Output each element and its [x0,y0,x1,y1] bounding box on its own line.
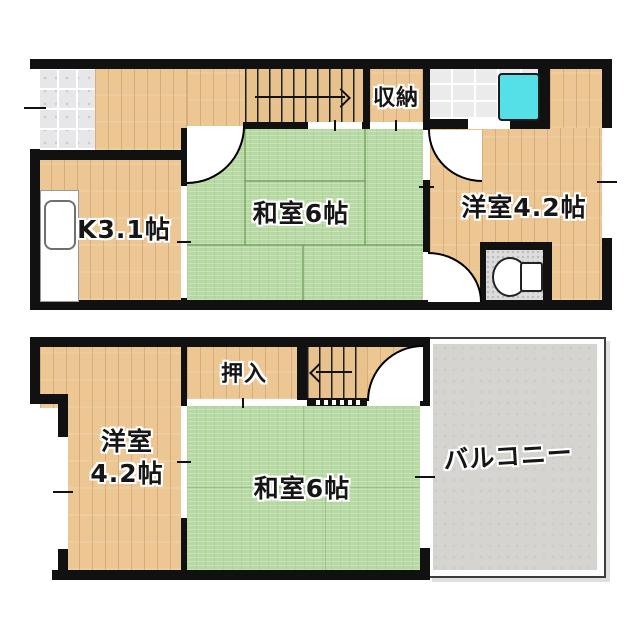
room-label-western-2f-line1: 洋室 [101,422,153,458]
sliding-door-tick [395,120,397,131]
kitchen-sink [44,200,76,250]
sliding-door-tick [177,461,191,463]
wall [52,570,430,580]
room-label-closet: 押入 [221,356,267,388]
tatami-seam [244,128,246,246]
wall [480,242,552,250]
tatami-seam [244,180,366,182]
room-label-kitchen: K3.1帖 [77,210,171,246]
sliding-door-tick [242,398,244,408]
wall [543,250,552,300]
window-tick [24,107,46,109]
wall [30,337,430,347]
toilet-tank [520,262,543,292]
wall [243,122,308,129]
hallway-floor-2 [187,69,245,128]
room-label-western-2f-line2: 4.2帖 [90,454,163,490]
tatami-seam [302,244,304,300]
sliding-door-tick [334,120,336,131]
window-tick [53,491,73,493]
western-room-floor-strip [550,69,602,128]
entrance-tile-floor [38,69,95,150]
room-label-tatami-2f: 和室6帖 [254,469,350,505]
stair-railing-dashes [312,400,362,405]
window-opening [602,128,612,238]
wall [30,300,612,310]
window-tick [415,476,435,478]
wall-tick [419,186,434,188]
entrance-door-opening [30,69,40,149]
room-label-storage: 収納 [373,80,419,112]
wall [423,59,430,128]
floor-plan-canvas: K3.1帖 和室6帖 洋室4.2帖 収納 [0,0,640,640]
wall [30,59,612,69]
sliding-door-tick [177,241,191,243]
room-label-tatami-1f: 和室6帖 [253,194,349,230]
room-label-western-1f: 洋室4.2帖 [461,188,586,224]
wall [297,347,307,400]
tatami-seam [364,128,366,246]
wall [30,150,188,160]
window-tick [597,181,617,183]
tatami-seam [187,244,425,246]
window-opening [58,437,68,549]
bathtub [498,73,540,121]
wall [363,59,370,128]
